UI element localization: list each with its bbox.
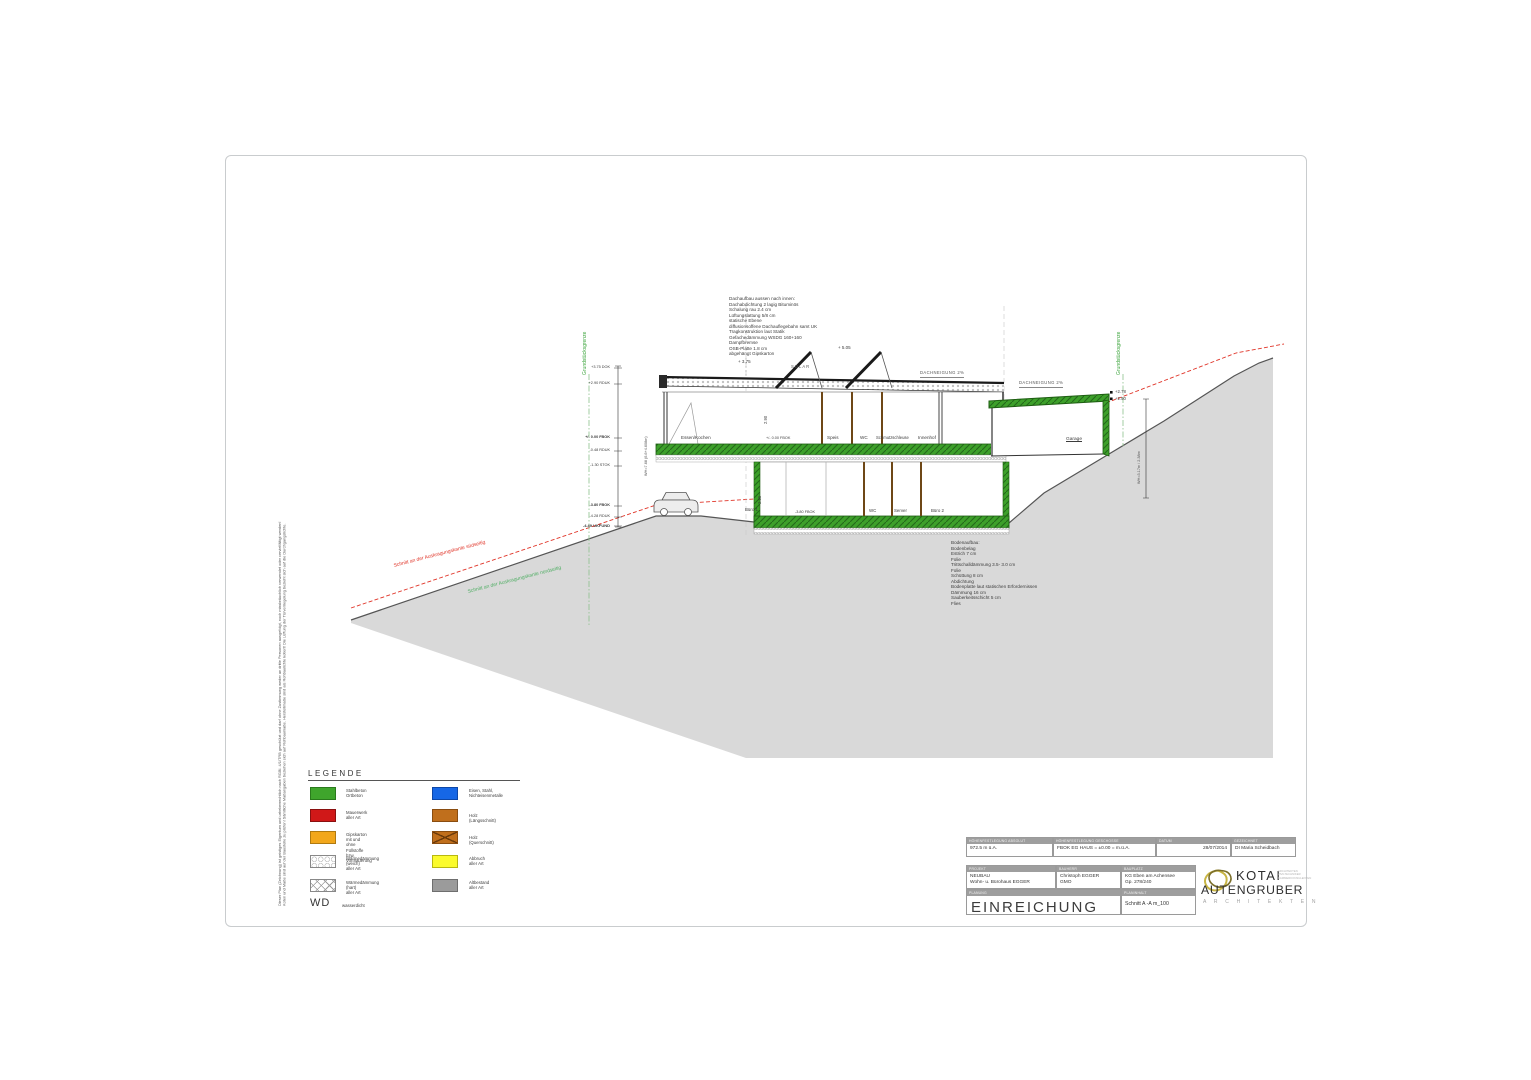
level-375-label: + 3.75 <box>738 359 751 365</box>
titleblock-value: KG Eben am Achensee Gp. 278/240 <box>1122 872 1195 887</box>
legend-label: Stahlbeton Ortbeton <box>346 788 367 798</box>
level-505-label: + 5.05 <box>838 345 851 351</box>
level-label: +2.90 RDUK <box>544 381 610 387</box>
level-label: -4.49 UKFUND <box>544 523 610 529</box>
room-label-server: Server <box>894 508 907 514</box>
eg-partition-2 <box>851 392 853 444</box>
legend-wd-abbr: WD <box>310 897 330 909</box>
legend-swatch-gipskarton <box>310 831 336 844</box>
legend-title: LEGENDE <box>308 769 364 778</box>
legend-label: Wärmedämmung (weich) aller Art <box>346 856 379 872</box>
eg-floor-slab <box>656 444 1006 455</box>
legend-label: Wärmedämmung (hart) aller Art <box>346 880 379 896</box>
eg-level-label: +/- 0.00 FBOK <box>766 436 790 442</box>
room-label-wc-eg: WC <box>860 435 868 441</box>
titleblock-cell: BAUPLATZ KG Eben am Achensee Gp. 278/240 <box>1121 865 1196 889</box>
legend-swatch-abbruch <box>432 855 458 868</box>
titleblock-cell: DATUM 28/07/2014 <box>1156 837 1231 857</box>
garage-interior <box>991 401 1103 456</box>
copyright-disclaimer: Dieser Plan (Zeichnung) ist geistiges Ei… <box>278 401 287 906</box>
legend-swatch-mauerwerk <box>310 809 336 822</box>
ug-floor-slab <box>754 516 1009 528</box>
garage-level-250: +2.50 <box>1115 396 1126 402</box>
property-line-label-right: Grundstücksgrenze <box>1117 309 1123 375</box>
legend-swatch-daemmung-hart <box>310 879 336 892</box>
garage-level-278: +2.78 <box>1115 389 1126 395</box>
legend-swatch-holz-quer <box>432 831 458 844</box>
room-label-buero1: Büro 1 <box>745 507 758 513</box>
room-height-ug: 2.35 <box>757 482 763 504</box>
eg-floor-insulation <box>656 455 1006 462</box>
level-label: -1.30 STOK <box>544 463 610 469</box>
logo-name-top: KOTAI <box>1236 868 1282 883</box>
garage-wall-right <box>1103 400 1109 456</box>
garage-level-marker-2 <box>1110 398 1113 401</box>
dim-line-left <box>615 366 621 527</box>
titleblock-cell: HÖHENFESTLEGUNG GESCHOSSE FBOK EG HAUS =… <box>1053 837 1156 857</box>
ug-interior <box>760 462 1003 516</box>
legend-swatch-altbestand <box>432 879 458 892</box>
room-height-eg: 2.90 <box>763 402 769 424</box>
legend-swatch-holz-laengs <box>432 809 458 822</box>
room-label-essen-kochen: Essen/Kochen <box>681 435 711 441</box>
legend-title-rule <box>308 780 520 781</box>
ug-partition-1 <box>863 462 865 516</box>
titleblock-cell: HÖHENFESTLEGUNG ABSOLUT 972.5 m ü.A. <box>966 837 1053 857</box>
legend-swatch-stahlbeton <box>310 787 336 800</box>
logo-name-bottom: AUTENGRUBER <box>1201 883 1303 897</box>
room-label-wc-ug: WC <box>869 508 876 514</box>
room-label-schmutzschleuse: Schmutzschleuse <box>876 435 909 441</box>
legend-label: Altbestand aller Art <box>469 880 489 890</box>
floor-buildup-note: Bodenaufbau: Bodenbelag Estrich 7 cm Fol… <box>951 540 1079 606</box>
titleblock-value: 28/07/2014 <box>1157 844 1230 854</box>
wall-height-right: WH=3.17m / 2.38m <box>1137 412 1143 484</box>
ug-partition-3 <box>920 462 922 516</box>
ug-partition-2 <box>891 462 893 516</box>
drawing-sheet: Dachaufbau aussen nach innen: Dachabdich… <box>225 155 1307 927</box>
solar-label: SOLAR <box>791 364 810 370</box>
roof-parapet <box>659 375 667 388</box>
roof-slope-label: DACHNEIGUNG 2% <box>920 370 964 378</box>
architect-logo: KOTAI ARCHITEKTEN ZIVILTECHNIKER KAMMERK… <box>1201 866 1299 918</box>
legend-wd-label: wasserdicht <box>342 903 365 908</box>
titleblock-value: NEUBAU Wohn- u. Bürohaus EGGER <box>967 872 1055 887</box>
titleblock-value: Christoph EGGER GMO <box>1057 872 1120 887</box>
level-label: -4.28 RDUK <box>544 514 610 520</box>
wall-height-left: WH=7.68 (6.6+4.608m) <box>644 394 650 476</box>
legend-label: Mauerwerk aller Art <box>346 810 367 820</box>
titleblock-cell: PROJEKT NEUBAU Wohn- u. Bürohaus EGGER <box>966 865 1056 889</box>
level-label: -0.48 RDUK <box>544 448 610 454</box>
room-label-innenhof: Innenhof <box>918 435 936 441</box>
room-label-buero2: Büro 2 <box>931 508 944 514</box>
legend-label: Abbruch aller Art <box>469 856 485 866</box>
titleblock-cell-planung: PLANUNG EINREICHUNG <box>966 889 1121 915</box>
level-label: +/- 0.00 FBOK <box>544 435 610 441</box>
level-label: -3.80 FBOK <box>544 503 610 509</box>
section-drawing <box>226 156 1306 926</box>
page: Dachaufbau aussen nach innen: Dachabdich… <box>0 0 1531 1080</box>
legend-label: Eisen, Stahl, Nichteisenmetalle <box>469 788 503 798</box>
logo-subtitle: A R C H I T E K T E N <box>1203 899 1319 905</box>
eg-partition-1 <box>821 392 823 444</box>
logo-side-text: ARCHITEKTEN ZIVILTECHNIKER KAMMERKONSULE… <box>1278 870 1311 880</box>
plan-phase-title: EINREICHUNG <box>967 896 1120 915</box>
garage-level-marker-1 <box>1110 391 1113 394</box>
titleblock-cell-planinhalt: PLANINHALT Schnitt A -A m_100 <box>1121 889 1196 915</box>
titleblock-cell: BAUHERR Christoph EGGER GMO <box>1056 865 1121 889</box>
room-label-speis: Speis <box>827 435 839 441</box>
level-label: +3.75 DOK <box>544 365 610 371</box>
ug-subbase <box>754 528 1009 534</box>
titleblock-value: 972.5 m ü.A. <box>967 844 1052 854</box>
legend-label: Holz (Querschnitt) <box>469 835 494 845</box>
garage-slope-label: DACHNEIGUNG 2% <box>1019 380 1063 388</box>
legend-swatch-eisen <box>432 787 458 800</box>
titleblock-value: FBOK EG HAUS = ±0.00 = m.ü.A. <box>1054 844 1155 854</box>
plan-content-value: Schnitt A -A m_100 <box>1122 896 1195 910</box>
titleblock-cell: GEZEICHNET DI Maria Scheidbach <box>1231 837 1296 857</box>
room-label-garage: Garage <box>1066 437 1082 443</box>
car-icon <box>654 493 698 516</box>
legend-swatch-daemmung-weich <box>310 855 336 868</box>
ug-level-label: -3.80 FBOK <box>795 510 815 516</box>
titleblock-value: DI Maria Scheidbach <box>1232 844 1295 854</box>
legend-label: Holz (Längsschnitt) <box>469 813 496 823</box>
